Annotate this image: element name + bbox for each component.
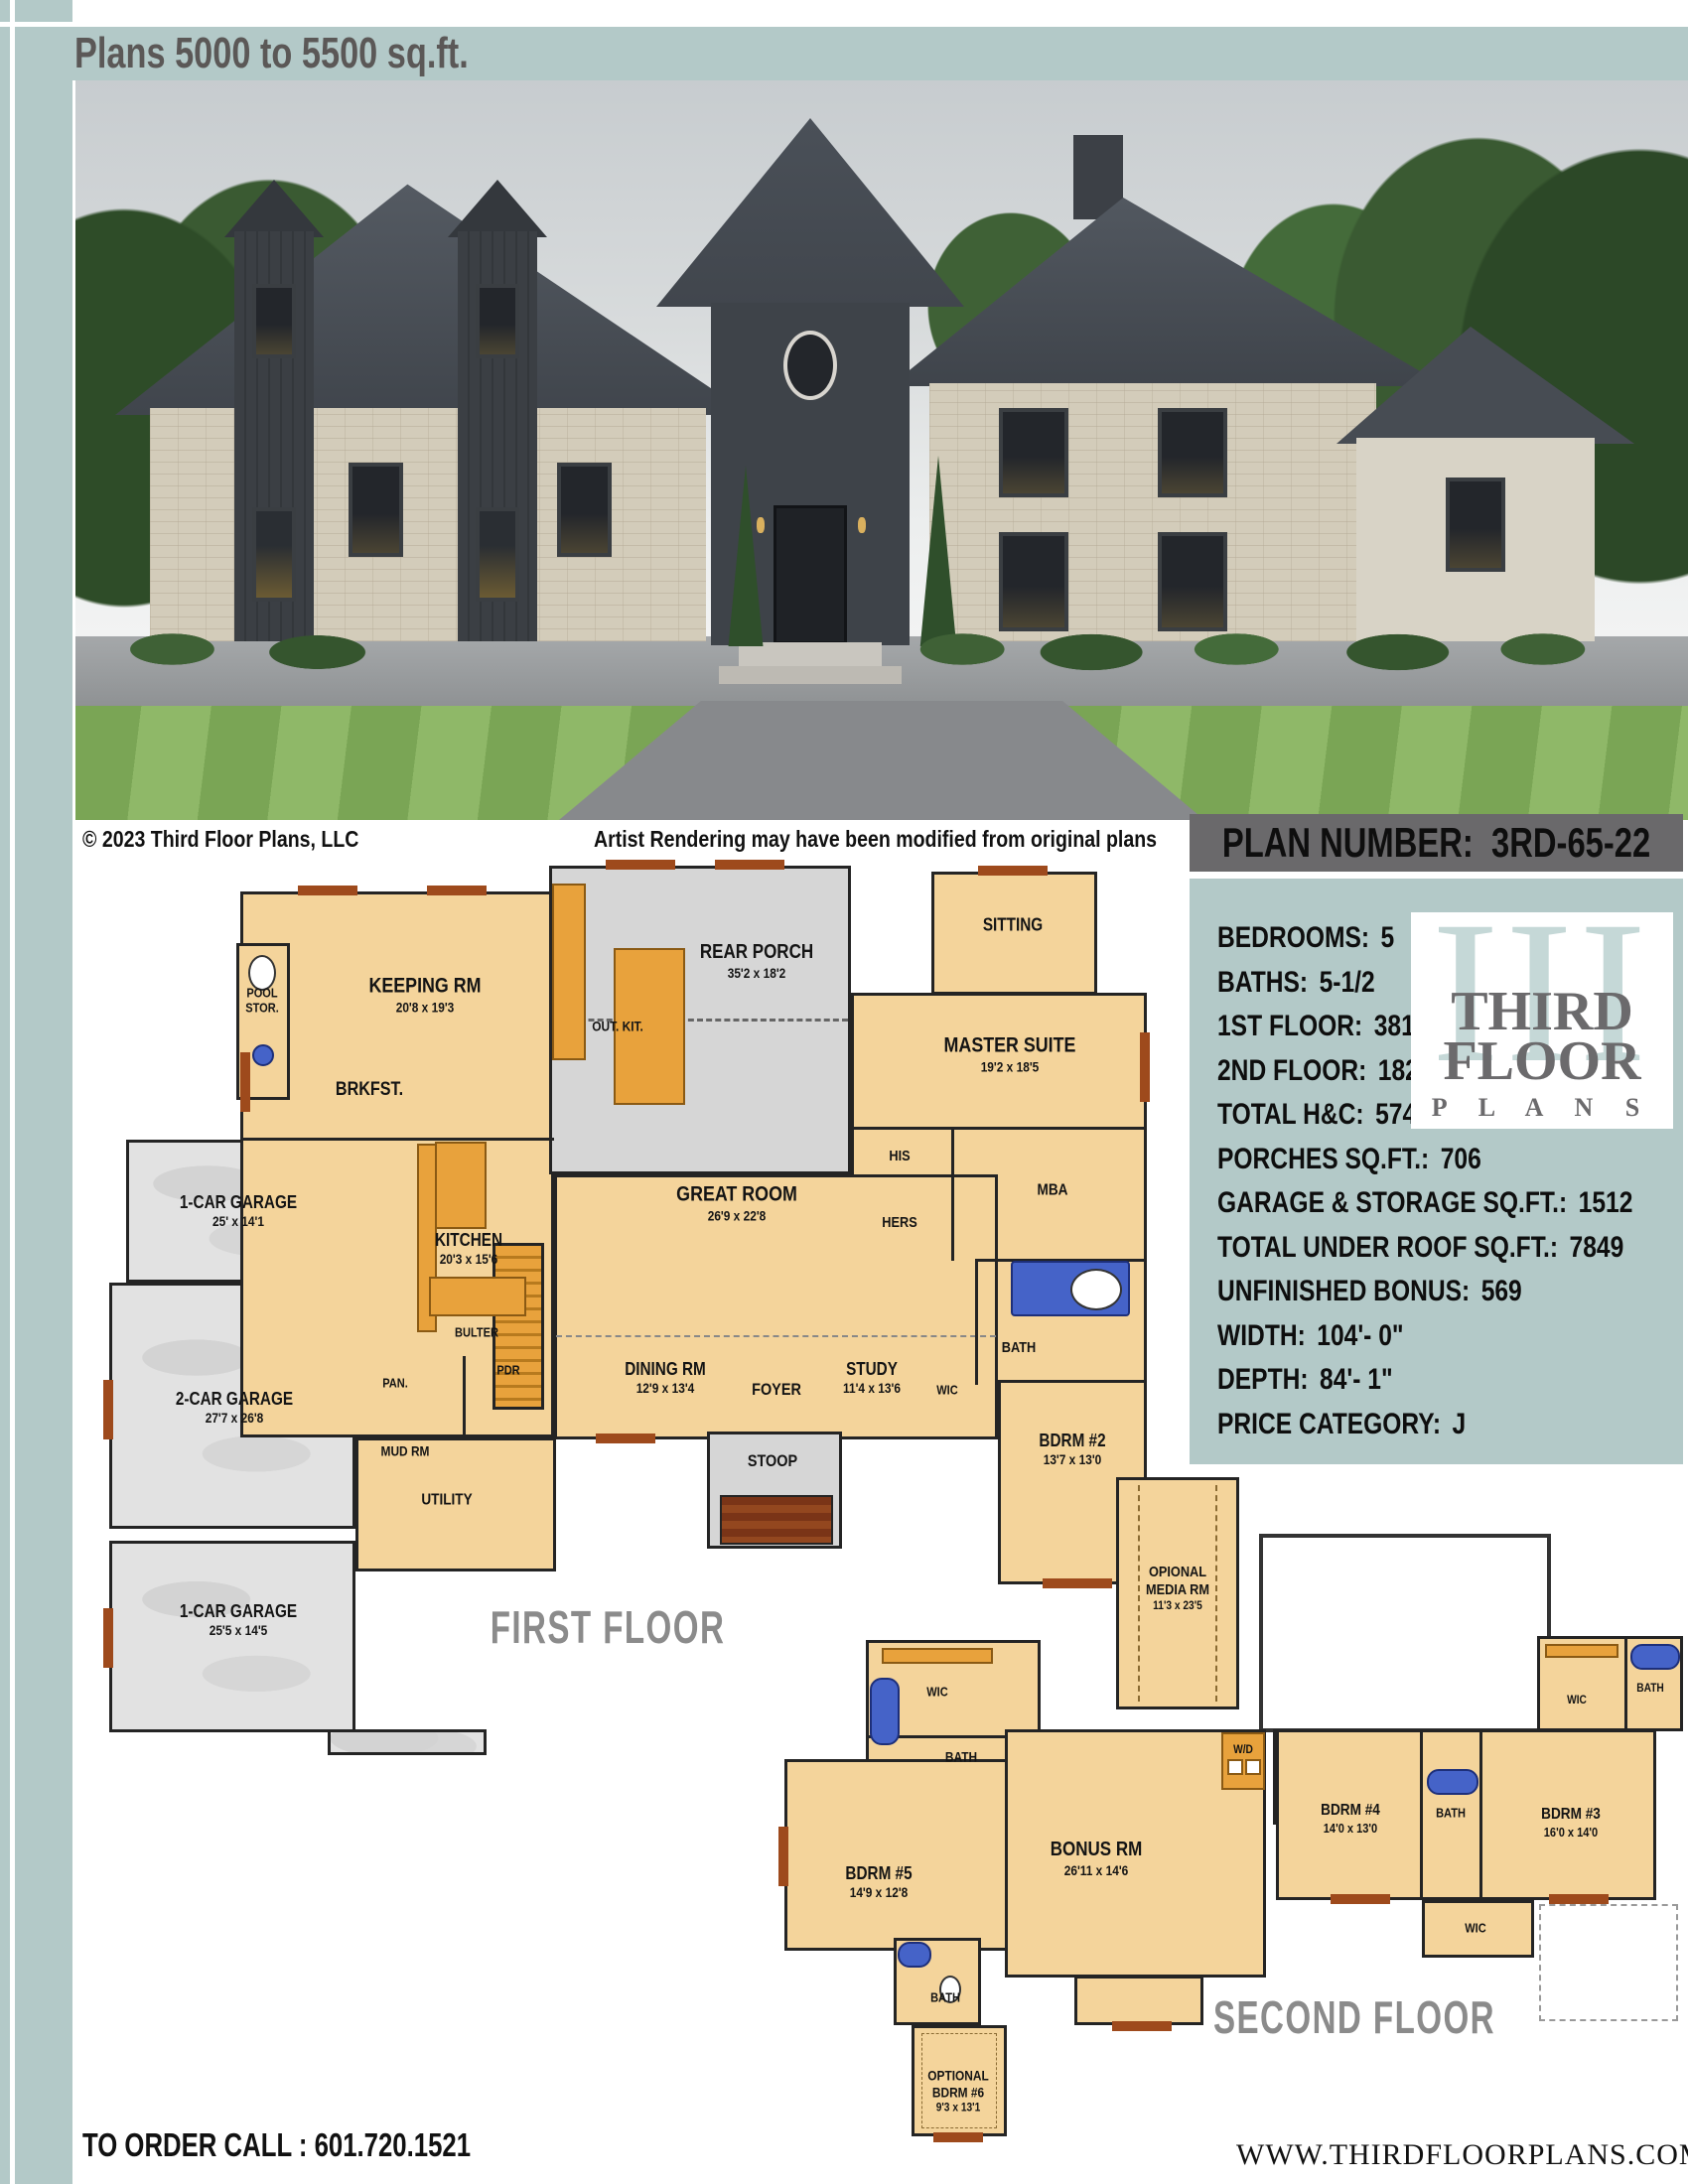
window-sill — [298, 886, 357, 895]
room-label-hers: HERS — [882, 1214, 916, 1232]
room-label-bonus: BONUS RM26'11 x 14'6 — [1051, 1839, 1143, 1878]
room-label-great-room: GREAT ROOM26'9 x 22'8 — [676, 1182, 797, 1223]
window-sill — [240, 1052, 250, 1112]
room-label-butler: BULTER — [455, 1324, 498, 1339]
page-header: Plans 5000 to 5500 sq.ft. — [15, 27, 1688, 80]
spec-row: DEPTH:84'- 1" — [1190, 1358, 1683, 1403]
stone-wall-right — [929, 383, 1376, 641]
kitchen-island — [435, 1142, 487, 1229]
room-label-mud: MUD RM — [381, 1443, 430, 1460]
room-label-bath-top-right: BATH — [1636, 1681, 1664, 1695]
room-bdrm5-box — [784, 1759, 1041, 1951]
dormer-window — [476, 284, 519, 358]
room-label-his: HIS — [889, 1148, 910, 1165]
dormer-window — [252, 507, 296, 602]
room-label-stoop: STOOP — [748, 1451, 797, 1471]
interior-wall — [1479, 1729, 1482, 1900]
closet-shelf — [1545, 1644, 1618, 1658]
room-label-kitchen: KITCHEN20'3 x 15'6 — [435, 1230, 502, 1268]
room-label-bath-mid: BATH — [1436, 1805, 1466, 1820]
spec-row: UNFINISHED BONUS:569 — [1190, 1270, 1683, 1314]
room-label-study: STUDY11'4 x 13'6 — [843, 1359, 901, 1397]
bonus-bump-out — [1074, 1976, 1203, 2025]
window-sill — [1140, 1032, 1150, 1102]
room-label-garage-1: 1-CAR GARAGE25' x 14'1 — [180, 1192, 297, 1230]
window-sill — [606, 860, 675, 870]
spec-row: PRICE CATEGORY:J — [1190, 1403, 1683, 1447]
plan-number-box: PLAN NUMBER: 3RD-65-22 — [1190, 814, 1683, 872]
roof-outline-dashed — [1539, 1904, 1678, 2021]
room-label-bdrm3: BDRM #316'0 x 14'0 — [1541, 1806, 1601, 1840]
window — [349, 463, 403, 557]
unfinished-bonus-space — [1259, 1534, 1551, 1732]
spec-row: GARAGE & STORAGE SQ.FT.:1512 — [1190, 1181, 1683, 1226]
left-stripe-narrow-top — [0, 0, 10, 22]
interior-wall — [240, 1138, 554, 1141]
page-title: Plans 5000 to 5500 sq.ft. — [74, 29, 469, 78]
interior-wall — [463, 1356, 466, 1437]
tub-icon — [870, 1678, 900, 1745]
spec-row: TOTAL UNDER ROOF SQ.FT.:7849 — [1190, 1226, 1683, 1271]
window-sill — [1112, 2021, 1172, 2031]
room-label-pool-storage: POOLSTOR. — [245, 986, 279, 1017]
room-label-bdrm6: OPTIONALBDRM #69'3 x 13'1 — [927, 2067, 988, 2114]
room-label-bath: BATH — [1002, 1339, 1036, 1357]
window — [1446, 478, 1505, 572]
shrub-row — [75, 616, 1688, 676]
room-label-wic-left: WIC — [926, 1684, 947, 1699]
room-label-foyer: FOYER — [752, 1380, 801, 1400]
left-stripe-narrow — [0, 27, 10, 2184]
first-floor-title: FIRST FLOOR — [491, 1600, 726, 1654]
room-label-out-kit: OUT. KIT. — [592, 1019, 643, 1035]
room-label-sitting: SITTING — [983, 914, 1043, 935]
washer-icon — [1227, 1759, 1243, 1775]
window-sill — [715, 860, 784, 870]
window — [557, 463, 612, 557]
interior-wall — [1420, 1729, 1423, 1900]
pool-equipment-icon — [252, 1044, 274, 1066]
window-sill — [933, 2132, 983, 2142]
window — [999, 408, 1068, 497]
logo-word-plans: P L A N S — [1411, 1093, 1673, 1123]
room-label-wic-top: WIC — [1567, 1693, 1587, 1706]
dormer-window — [476, 507, 519, 602]
butler-counter — [429, 1277, 526, 1316]
tub-icon — [1427, 1769, 1478, 1795]
flyer-page: Plans 5000 to 5500 sq.ft. — [0, 0, 1688, 2184]
room-label-media: OPIONALMEDIA RM11'3 x 23'5 — [1146, 1564, 1209, 1613]
porch-sconce — [858, 517, 866, 533]
room-label-garage-2: 2-CAR GARAGE27'7 x 26'8 — [176, 1389, 293, 1427]
room-label-garage-3: 1-CAR GARAGE25'5 x 14'5 — [180, 1601, 297, 1639]
room-label-bdrm4: BDRM #414'0 x 13'0 — [1321, 1802, 1380, 1836]
interior-wall — [975, 1259, 978, 1385]
room-label-wd: W/D — [1233, 1742, 1253, 1756]
room-label-keeping: KEEPING RM20'8 x 19'3 — [368, 974, 481, 1015]
third-floor-plans-logo: III THIRD FLOOR P L A N S — [1411, 912, 1673, 1129]
outdoor-kitchen-counter — [552, 884, 586, 1060]
room-label-wic: WIC — [936, 1382, 957, 1397]
window-sill — [103, 1608, 113, 1668]
room-label-bdrm2: BDRM #213'7 x 13'0 — [1039, 1431, 1105, 1468]
garage-entry-stoop — [328, 1729, 487, 1755]
window-sill — [778, 1827, 788, 1886]
oval-window — [783, 331, 837, 400]
left-stripe-wide-top — [15, 0, 72, 22]
copyright-text: © 2023 Third Floor Plans, LLC — [82, 826, 358, 853]
room-label-brkfst: BRKFST. — [336, 1079, 403, 1101]
tub-icon — [1630, 1644, 1680, 1670]
room-label-utility: UTILITY — [421, 1492, 472, 1511]
website-text: WWW.THIRDFLOORPLANS.COM — [1236, 2138, 1688, 2172]
window-sill — [1549, 1894, 1609, 1904]
spec-row: WIDTH:104'- 0" — [1190, 1314, 1683, 1359]
interior-wall — [1624, 1636, 1627, 1731]
stoop-steps — [720, 1495, 833, 1545]
room-label-bath6: BATH — [930, 1989, 960, 2004]
great-room-dashed-line — [556, 1335, 996, 1337]
room-label-bath-left: BATH — [945, 1749, 977, 1766]
dormer-window — [252, 284, 296, 358]
window-sill — [427, 886, 487, 895]
interior-wall — [951, 1130, 954, 1261]
rendering-note: Artist Rendering may have been modified … — [594, 826, 1157, 853]
room-label-wic-bottom: WIC — [1465, 1920, 1485, 1935]
dryer-icon — [1245, 1759, 1261, 1775]
order-call-text: TO ORDER CALL : 601.720.1521 — [82, 2126, 471, 2164]
room-label-pan: PAN. — [382, 1375, 408, 1390]
interior-wall — [851, 1127, 1147, 1130]
room-label-dining: DINING RM12'9 x 13'4 — [625, 1359, 706, 1397]
room-label-rear-porch: REAR PORCH35'2 x 18'2 — [700, 941, 813, 981]
room-label-mba: MBA — [1038, 1182, 1068, 1201]
spec-row: PORCHES SQ.FT.:706 — [1190, 1138, 1683, 1182]
house-photo — [75, 80, 1688, 820]
plan-number: PLAN NUMBER: 3RD-65-22 — [1222, 819, 1650, 867]
logo-word-floor: FLOOR — [1411, 1029, 1673, 1093]
master-tub-icon — [1070, 1269, 1122, 1310]
tub-icon — [898, 1942, 931, 1968]
window — [1158, 408, 1227, 497]
staircase — [492, 1243, 544, 1410]
window-sill — [978, 866, 1048, 876]
room-label-master-suite: MASTER SUITE19'2 x 18'5 — [944, 1033, 1076, 1074]
room-label-pdr: PDR — [496, 1362, 519, 1377]
window-sill — [1043, 1578, 1112, 1588]
room-label-bdrm5: BDRM #514'9 x 12'8 — [845, 1863, 912, 1901]
closet-shelf — [882, 1648, 993, 1664]
second-floor-title: SECOND FLOOR — [1213, 1990, 1495, 2044]
stone-wall-left — [150, 408, 706, 641]
window-sill — [596, 1433, 655, 1443]
porch-sconce — [757, 517, 765, 533]
left-stripe-wide — [15, 27, 72, 2184]
window-sill — [1331, 1894, 1390, 1904]
window-sill — [103, 1380, 113, 1439]
